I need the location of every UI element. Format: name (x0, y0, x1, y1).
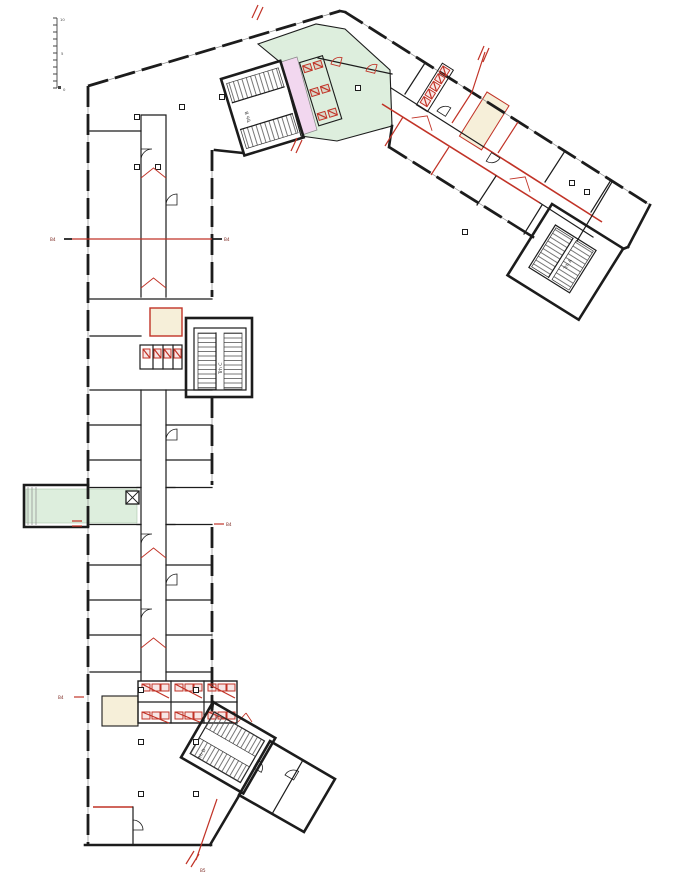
floor-plan-svg: Trh C Trh B (0, 0, 673, 887)
floor-plan-page: Trh C Trh B (0, 0, 673, 887)
outer-walls (85, 11, 650, 845)
scale-label-bottom: 0 (63, 87, 66, 92)
elevator-icon (126, 491, 139, 504)
scale-label-top: 10 (60, 17, 65, 22)
stair-core-c: Trh C (186, 318, 252, 397)
left-wing-doors (141, 149, 177, 648)
wc-block-rightwing (416, 63, 453, 111)
beige-room-mid (150, 308, 182, 336)
section-label-right-b4: B4 (224, 237, 230, 242)
scale-bar: 10 5 0 (53, 17, 66, 92)
beige-room-bottom (102, 696, 138, 726)
green-entrance-corridor (26, 489, 137, 523)
section-label-low-b4: B4 (58, 695, 64, 700)
stair-core-a: Trh A (507, 204, 623, 320)
section-label-bottom-b5: B5 (200, 868, 206, 873)
stair-label-b: Trh B (244, 110, 253, 124)
section-label-left-b4: B4 (50, 237, 56, 242)
scale-label-mid: 5 (61, 51, 64, 56)
bottom-left-partitions (93, 807, 143, 845)
section-label-mid-b4: B4 (226, 522, 232, 527)
wc-block-mid (140, 345, 182, 369)
stair-label-c: Trh C (218, 362, 224, 375)
